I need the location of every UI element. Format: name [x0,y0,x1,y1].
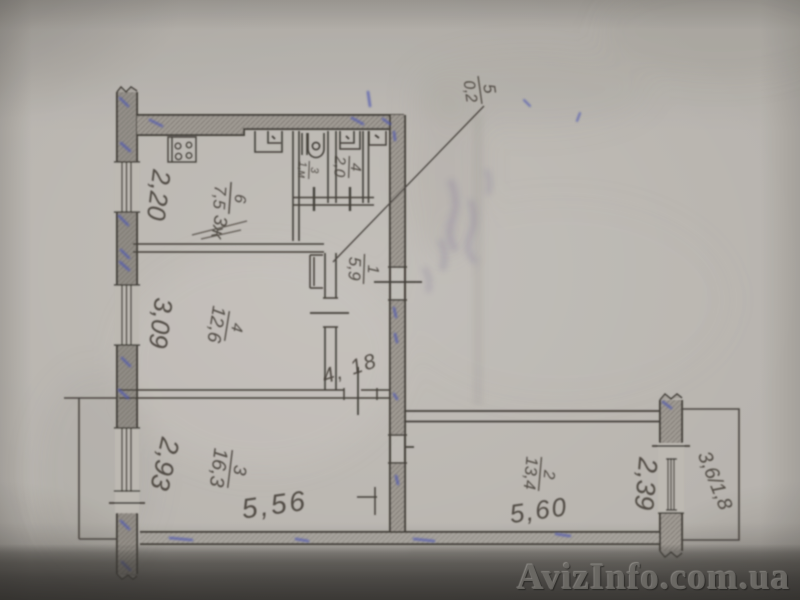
svg-text:2,0: 2,0 [331,155,349,178]
svg-text:0,2: 0,2 [460,79,480,103]
svg-text:6: 6 [231,194,249,204]
svg-text:2: 2 [540,469,558,480]
svg-text:3,09: 3,09 [143,296,179,350]
svg-text:5,60: 5,60 [508,491,570,529]
svg-text:1,м: 1,м [296,161,309,179]
svg-text:2,39: 2,39 [629,455,664,511]
svg-text:7,5: 7,5 [209,185,230,210]
svg-text:5,9: 5,9 [345,257,365,282]
svg-text:5,56: 5,56 [240,485,310,525]
svg-text:1: 1 [364,265,381,274]
svg-text:13,4: 13,4 [520,456,542,491]
svg-text:3: 3 [308,167,320,174]
svg-text:16,3: 16,3 [205,447,232,488]
svg-text:3,6/1,8: 3,6/1,8 [693,448,736,513]
svg-text:2,20: 2,20 [141,167,177,222]
svg-text:3: 3 [229,464,250,476]
